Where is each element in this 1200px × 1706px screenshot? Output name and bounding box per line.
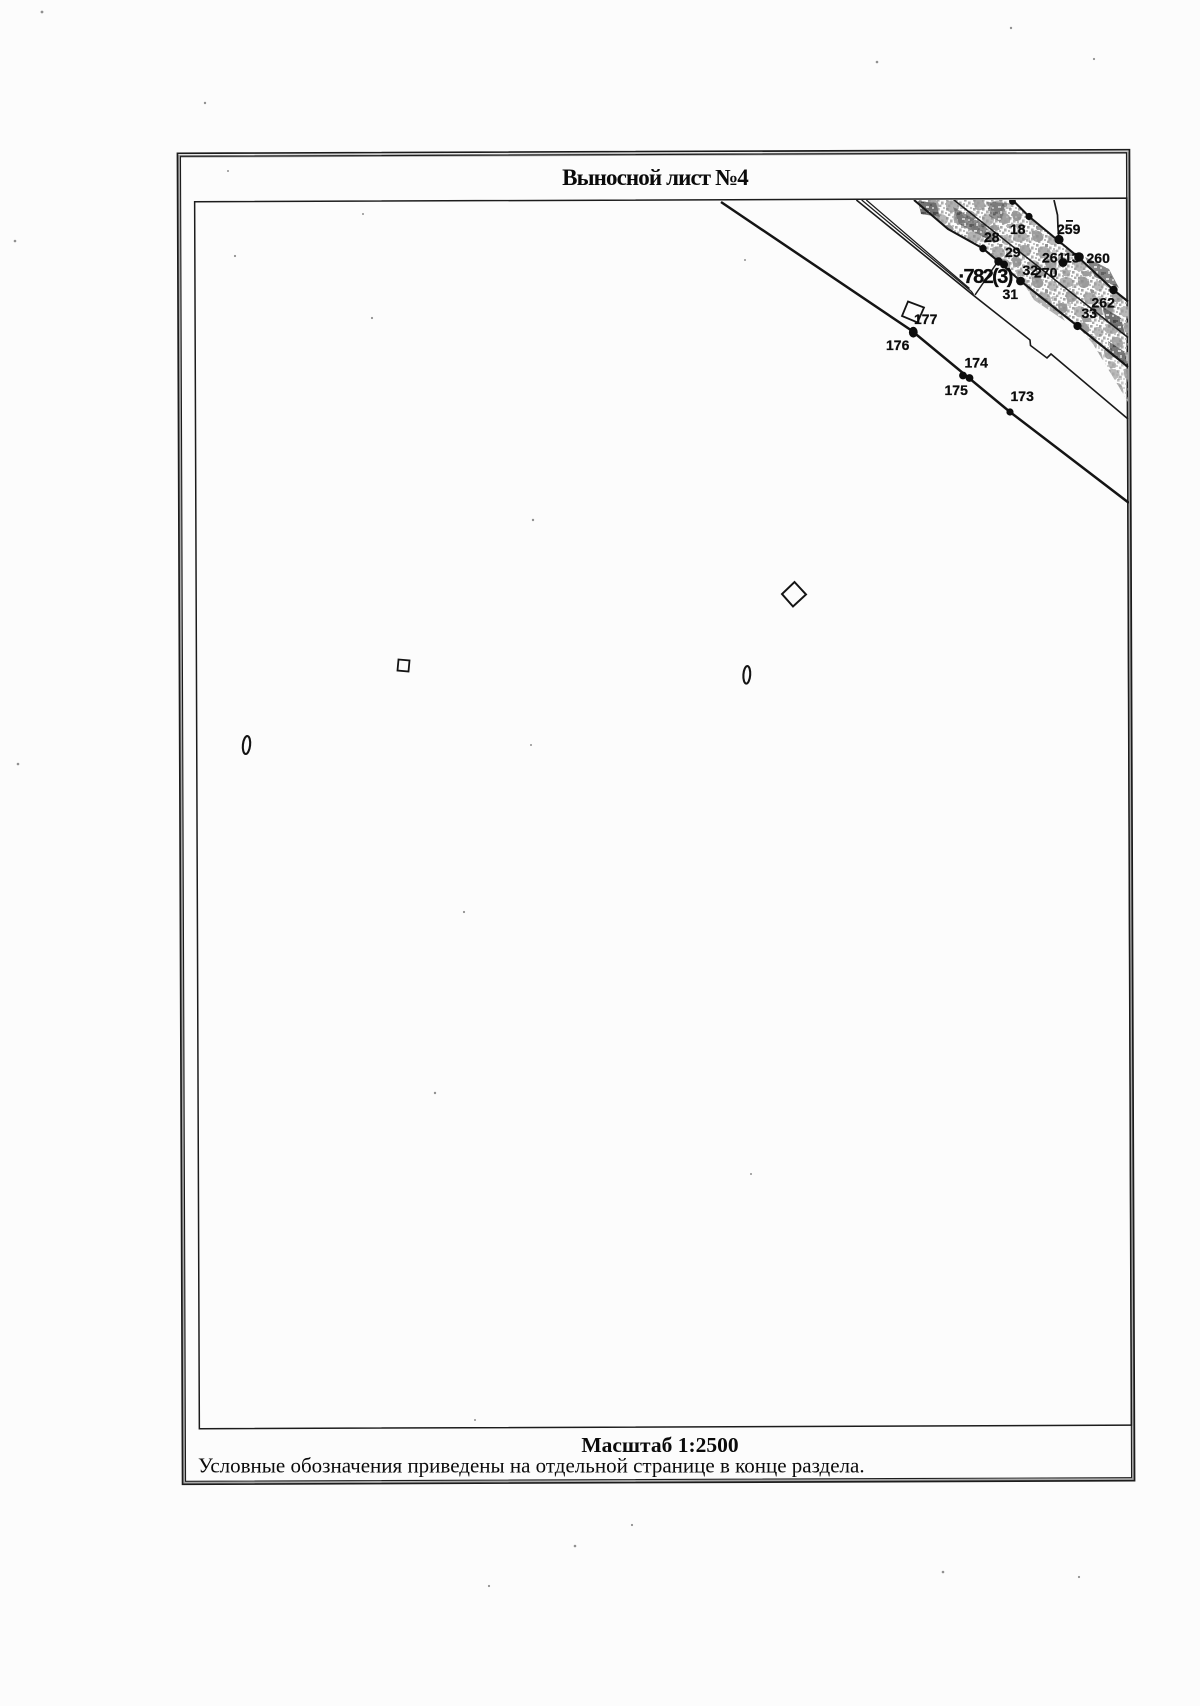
svg-text:270: 270 [1034,265,1058,281]
svg-text:177: 177 [914,311,938,327]
svg-text:259: 259 [1057,221,1081,237]
svg-text:28: 28 [984,229,1000,245]
svg-text:31: 31 [1003,286,1019,302]
svg-text:176: 176 [886,337,910,353]
svg-text:Выносной лист №4: Выносной лист №4 [562,165,749,190]
svg-text:262: 262 [1092,295,1116,311]
svg-text:261: 261 [1042,250,1066,266]
svg-text:173: 173 [1011,388,1035,404]
svg-text:18: 18 [1010,221,1026,237]
svg-text:260: 260 [1087,250,1111,266]
svg-text:Условные обозначения приведены: Условные обозначения приведены на отдель… [198,1454,865,1478]
svg-text:13: 13 [1064,250,1080,266]
svg-text:174: 174 [965,355,989,371]
svg-text:175: 175 [945,382,969,398]
svg-text:·782(3): ·782(3) [959,266,1013,288]
svg-text:29: 29 [1005,244,1021,260]
